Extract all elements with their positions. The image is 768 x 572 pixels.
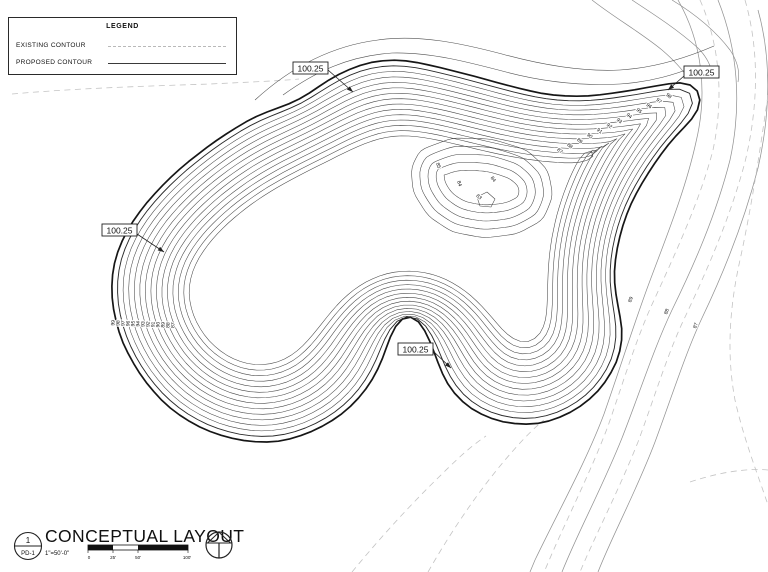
callout-text: 100.25 <box>403 345 429 355</box>
dashed-line-sample <box>108 46 226 47</box>
legend-row-existing: EXISTING CONTOUR <box>16 42 228 52</box>
existing-contour-line <box>730 95 768 505</box>
legend-label: EXISTING CONTOUR <box>16 42 86 49</box>
scalebar-label: 100' <box>183 555 192 560</box>
scale-bar: 0 25' 50' 100' <box>86 542 196 564</box>
proposed-contour-line <box>129 77 675 426</box>
existing-contour-line <box>545 0 719 570</box>
hill-contour-line <box>436 162 527 213</box>
proposed-contour-line <box>134 82 666 420</box>
existing-contour-line <box>592 0 688 78</box>
contour-plan: 9998979695949392919089888787888990919293… <box>0 0 768 572</box>
proposed-contour-line <box>184 131 597 371</box>
proposed-contour-line <box>189 136 593 365</box>
proposed-contour-line <box>167 115 617 387</box>
callout-leader <box>137 234 164 252</box>
hill-contour-line <box>412 138 552 237</box>
elevation-label: 87 <box>556 147 564 155</box>
hill-contour-line <box>428 154 535 221</box>
title-block: 1 PD-1 CONCEPTUAL LAYOUT 1"=50'-0" 0 25'… <box>0 524 260 572</box>
legend-row-proposed: PROPOSED CONTOUR <box>16 59 228 69</box>
spot-elevation-callout: 100.25 <box>398 343 451 368</box>
elevation-label: 92 <box>605 122 613 130</box>
spot-elevation-callout: 100.25 <box>668 66 719 90</box>
detail-badge: 1 PD-1 <box>12 530 44 562</box>
sheet-number: PD-1 <box>21 551 35 557</box>
callout-text: 100.25 <box>689 68 715 78</box>
proposed-contour-line <box>145 93 648 409</box>
proposed-contour-line <box>173 120 609 381</box>
callout-text: 100.25 <box>107 226 133 236</box>
elevation-label: 94 <box>625 112 633 120</box>
existing-contour-line <box>598 10 768 572</box>
elevation-label: 89 <box>575 137 583 145</box>
spot-elevation-callout: 100.25 <box>293 62 353 92</box>
proposed-outer-contour <box>283 53 697 95</box>
elevation-label: 84 <box>455 180 462 187</box>
existing-contour-line <box>580 0 756 572</box>
hill-contours <box>412 138 552 237</box>
elevation-label: 90 <box>585 132 593 140</box>
existing-contour-line <box>352 436 486 572</box>
existing-contour-line <box>12 79 299 94</box>
elevation-label: 98 <box>664 92 672 100</box>
existing-contour-line <box>530 0 702 572</box>
elevation-label: 93 <box>615 117 623 125</box>
drawing-sheet: 9998979695949392919089888787888990919293… <box>0 0 768 572</box>
callout-text: 100.25 <box>298 64 324 74</box>
elevation-label: 84 <box>489 175 497 183</box>
legend-title: LEGEND <box>9 23 236 30</box>
existing-contour-line <box>428 420 544 572</box>
legend-label: PROPOSED CONTOUR <box>16 59 92 66</box>
solid-line-sample <box>108 63 226 64</box>
elevation-label: 87 <box>170 322 177 328</box>
scalebar-label: 25' <box>110 555 116 560</box>
elevation-label: 89 <box>627 296 635 303</box>
hill-contour-line <box>444 170 519 204</box>
legend-box: LEGEND EXISTING CONTOUR PROPOSED CONTOUR <box>8 17 237 75</box>
elevation-label: 87 <box>692 322 700 329</box>
north-arrow-icon <box>204 530 234 560</box>
proposed-contours <box>112 60 700 442</box>
scalebar-label: 0 <box>88 555 91 560</box>
drawing-scale: 1"=50'-0" <box>45 551 69 557</box>
scalebar-label: 50' <box>135 555 141 560</box>
detail-number: 1 <box>26 536 31 545</box>
existing-contour-line <box>562 0 737 572</box>
elevation-label: 97 <box>655 97 663 105</box>
